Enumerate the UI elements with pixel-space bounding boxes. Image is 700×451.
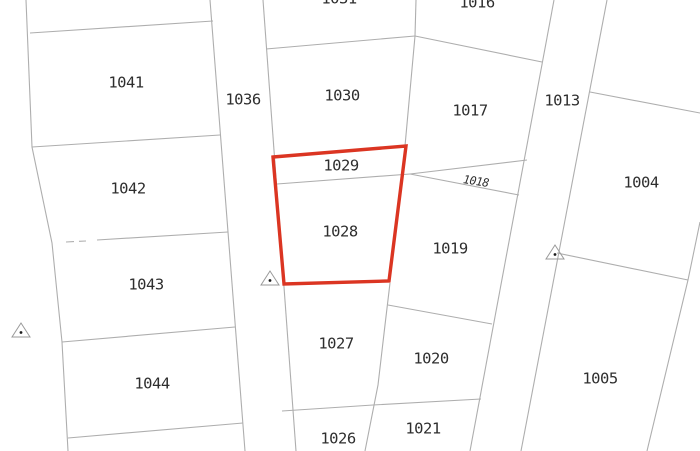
parcel-label-1043: 1043 [128,275,163,293]
parcel-1004-1005 [557,253,688,280]
parcel-label-1042: 1042 [110,179,145,197]
parcel-1042-1043 [97,232,228,240]
parcel-label-1020: 1020 [413,349,448,367]
survey-marker-icon [261,271,279,285]
survey-marker-dot-icon [554,253,557,256]
parcel-label-1017: 1017 [452,101,487,119]
parcel-1026-1021-north [282,399,481,411]
parcel-1004-north [590,92,700,113]
parcel-label-1041: 1041 [108,73,143,91]
cadastral-map[interactable]: 1041104210431044103610311030102910281027… [0,0,700,451]
parcel-1031-1030 [266,36,415,49]
parcel-label-1004: 1004 [623,173,658,191]
parcel-1030-1017 [405,36,415,146]
west-outer-boundary [26,0,68,451]
survey-marker-dot-icon [269,279,272,282]
road-1013-west-edge [470,0,554,451]
parcel-label-1029: 1029 [323,156,358,174]
parcel-1027-1020 [365,283,390,451]
parcel-1041-1042 [32,135,220,147]
parcel-label-1021: 1021 [405,419,440,437]
parcel-label-1028: 1028 [322,222,357,240]
parcel-label-1018: 1018 [462,172,490,190]
parcel-1016-1017 [415,36,542,62]
parcel-label-1031: 1031 [321,0,356,7]
parcel-label-1030: 1030 [324,86,359,104]
parcel-1043-1044 [62,327,235,342]
parcel-label-1013: 1013 [544,91,579,109]
parcel-label-1036: 1036 [225,90,260,108]
cadastral-map-viewport[interactable]: 1041104210431044103610311030102910281027… [0,0,700,451]
east-outer-boundary [647,222,700,451]
parcel-1042-1043-dashed [66,241,86,242]
parcel-1044-south [68,423,243,438]
parcel-label-1026: 1026 [320,429,355,447]
survey-marker-icon [546,245,564,259]
parcel-label-1027: 1027 [318,334,353,352]
parcel-label-1005: 1005 [582,369,617,387]
survey-marker-dot-icon [20,331,23,334]
road-1036-west-edge [210,0,245,451]
parcel-1041-north [30,21,213,33]
parcel-1019-1020 [388,305,492,324]
parcel-label-1016: 1016 [459,0,494,11]
parcel-label-1044: 1044 [134,374,169,392]
parcel-label-1019: 1019 [432,239,467,257]
parcel-1031-1016 [415,0,416,36]
survey-marker-icon [12,323,30,337]
parcel-1029-1028 [277,174,410,184]
